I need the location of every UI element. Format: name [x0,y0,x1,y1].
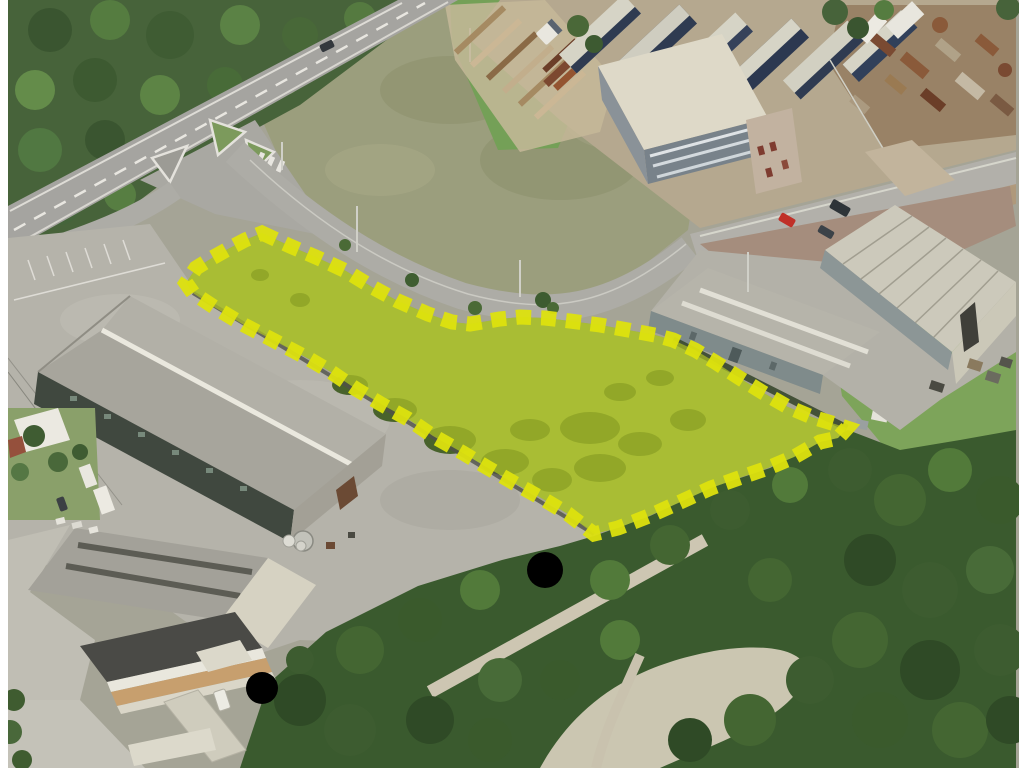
tree [852,692,908,748]
tree [406,696,454,744]
tree [974,624,1024,676]
tree [874,474,926,526]
scrap [932,17,948,33]
tree [398,598,442,642]
tree [23,425,45,447]
tree [847,17,869,39]
tree [336,626,384,674]
window [104,414,111,419]
tree [11,463,29,481]
tree [900,640,960,700]
tree [28,8,72,52]
tree [460,570,500,610]
silo [283,535,295,547]
tree [748,558,792,602]
photo-content [0,0,1024,768]
yard-clutter [326,542,335,549]
scrap [998,63,1012,77]
tree [668,718,712,762]
left-white-bar [0,0,8,768]
tree [932,702,988,758]
tree [72,444,88,460]
tree [650,525,690,565]
tree [585,35,603,53]
field-patch [325,144,435,196]
tree [468,301,482,315]
tree [772,467,808,503]
tree [828,448,872,492]
tree [468,718,512,762]
tree [786,656,834,704]
window [138,432,145,437]
right-white-bar [1019,0,1024,768]
tree [478,658,522,702]
tree [246,672,278,704]
tree [966,546,1014,594]
tree [540,660,580,700]
tree [527,552,563,588]
tree [832,612,888,668]
tree [146,11,194,59]
tree [90,0,130,40]
tree [286,646,314,674]
tree [976,476,1024,524]
annex-building [746,108,802,194]
window [206,468,213,473]
window [240,486,247,491]
tree [928,448,972,492]
tree [18,128,62,172]
tree [590,560,630,600]
tree [339,239,351,251]
tree [844,534,896,586]
tree [874,0,894,20]
tree [710,490,750,530]
tree [48,452,68,472]
tree [73,58,117,102]
tree [220,5,260,45]
tree [15,70,55,110]
aerial-photo [0,0,1024,768]
window [172,450,179,455]
silo [296,541,306,551]
yard-clutter [348,532,355,538]
tree [902,562,958,618]
window [70,396,77,401]
tree [405,273,419,287]
tree [140,75,180,115]
tree [822,0,848,25]
tree [724,694,776,746]
tree [274,674,326,726]
tree [324,704,376,756]
tree [567,15,589,37]
aerial-photo-canvas [0,0,1024,768]
tree [600,620,640,660]
